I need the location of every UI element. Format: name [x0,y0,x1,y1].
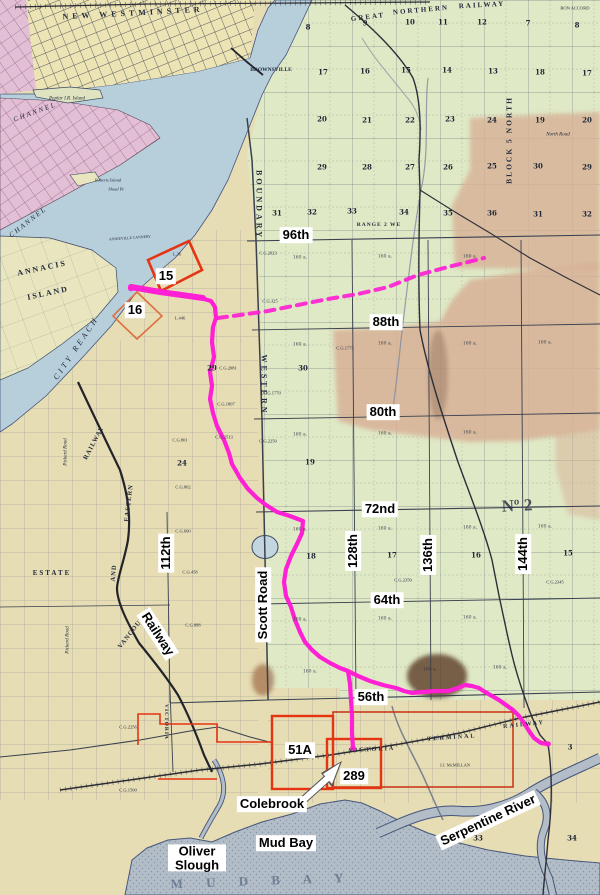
street-label-scott-road: Scott Road [255,568,271,643]
acre-label: 160 a. [303,670,317,675]
section-number: 24 [177,459,187,468]
section-number: 30 [298,364,308,373]
section-number: 31 [533,210,543,219]
acre-label: 160 a. [378,432,392,437]
text-estate: ESTATE [33,569,72,577]
section-number: 31 [272,209,282,218]
section-number: 34 [399,208,409,217]
text-island: ISLAND [26,284,69,302]
section-number: 20 [582,116,592,125]
text-poplar-island: Poplar I.R. Island [49,97,85,102]
place-label-mud-bay: Mud Bay [256,835,316,851]
text-cg-11: C.G.660 [175,529,190,534]
text-pickard-road-1: Pickard Road [64,438,69,465]
acre-label: 160 a. [293,618,307,623]
section-number: 16 [360,67,370,76]
acre-label: 160 a. [293,528,307,533]
section-number: 18 [535,68,545,77]
section-number: 7 [526,19,531,28]
text-l36: L.36 [173,252,181,257]
text-block-5-north: BLOCK 5 NORTH [505,96,514,184]
text-shoal-pt: Shoal Pt [108,187,123,192]
section-number: 3 [568,743,573,752]
historic-map-canvas: NEW WESTMINSTERGREATNORTHERNRAILWAYBON A… [0,0,600,895]
section-number: 17 [387,551,397,560]
text-l446: L.446 [175,316,186,321]
text-channel-upper: CHANNEL [12,100,58,123]
text-channel-lower: CHANNEL [8,205,49,239]
text-western-road: WESTERN [260,354,269,415]
street-label-88th: 88th [370,314,403,330]
section-number: 32 [307,208,317,217]
street-label-96th: 96th [280,227,313,243]
section-number: 11 [438,18,448,27]
street-label-80th: 80th [367,404,400,420]
text-new-westminster: NEW WESTMINSTER [62,5,204,21]
parcel-label-51a: 51A [285,742,315,758]
section-number: 16 [471,551,481,560]
acre-label: 160 a. [378,527,392,532]
street-label-128th: 128th [345,531,361,571]
parcel-label-15: 15 [156,268,176,284]
street-label-56th: 56th [355,689,388,705]
street-label-64th: 64th [371,592,404,608]
text-cg-8: C.G.2250 [259,439,277,444]
text-vve-and: AND [110,564,118,582]
text-vtr-railway: RAILWAY [503,720,545,730]
acre-label: 160 a. [293,256,307,261]
text-cg-14: C.G.2350 [394,578,412,583]
section-number: 26 [443,163,453,172]
section-number: 19 [535,116,545,125]
section-number: 32 [582,210,592,219]
acre-label: 160 a. [463,616,477,621]
acre-label: 160 a. [293,433,307,438]
acre-label: 160 a. [463,255,477,260]
section-number: 14 [442,66,452,75]
text-railway-top: RAILWAY [459,0,506,10]
text-vtr-victoria: VICTORIA [349,746,396,754]
text-north-road: North Road [546,133,569,138]
text-brownsville: BROWNSVILLE [250,67,292,73]
text-cg-12: C.G.458 [182,570,197,575]
text-annacis: ANNACIS [16,258,67,277]
section-number: 28 [362,163,372,172]
text-cg-2: C.G.325 [262,299,277,304]
section-number: 29 [207,364,217,373]
section-number: 20 [317,115,327,124]
section-number: 23 [445,115,455,124]
text-pickard-road-2: Pickard Road [66,626,71,653]
section-number: 8 [575,21,580,30]
section-number: 13 [488,67,498,76]
acre-label: 160 a. [463,342,477,347]
text-cg-5: C.G.2081 [219,366,237,371]
acre-label: 160 a. [463,526,477,531]
acre-label: 160 a. [538,341,552,346]
section-number: 36 [487,209,497,218]
acre-label: 160 a. [293,343,307,348]
text-cg-3: C.G.1775 [336,346,354,351]
acre-label: 160 a. [463,431,477,436]
section-number: 10 [405,18,415,27]
parcel-label-16: 16 [125,302,145,318]
street-label-railway: Railway [137,607,180,661]
text-city-reach: CITY REACH [51,315,100,382]
section-number: 27 [405,163,415,172]
acre-label: 160 a. [423,668,437,673]
section-number: 9 [363,19,368,28]
place-label-oliver-slough: Oliver Slough [168,844,226,871]
text-great: GREAT [350,11,385,23]
acre-label: 160 a. [493,666,507,671]
section-number: 12 [477,18,487,27]
text-vve-railway: RAILWAY [82,425,106,461]
text-bon-accord: BON ACCORD [560,6,589,11]
acre-label: 160 a. [378,342,392,347]
acre-label: 160 a. [538,525,552,530]
text-cg-10: C.G.802 [175,485,190,490]
section-number: 18 [306,552,316,561]
label-layer: NEW WESTMINSTERGREATNORTHERNRAILWAYBON A… [0,0,600,895]
text-cg-15: C.G.2345 [546,580,564,585]
section-number: 17 [582,69,592,78]
place-label-colebrook: Colebrook [237,796,307,812]
text-mud-bay-big: M U D B A Y [170,870,353,892]
text-landowner: J.J. McMILLAN [440,763,470,768]
section-number: 30 [533,162,543,171]
text-township-no2: Nº 2 [501,495,533,517]
text-vtr-terminal: TERMINAL [427,733,476,742]
street-label-72nd: 72nd [362,501,398,517]
section-number: 15 [563,549,573,558]
section-number: 33 [347,207,357,216]
text-cg-16: C.G.2256 [119,725,137,730]
text-cg-7: C.G.2513 [215,435,233,440]
text-vve-eastern: EASTERN [123,484,135,522]
street-label-112th: 112th [158,533,174,572]
text-cg-4: C.G.1770 [263,391,281,396]
section-number: 21 [362,116,372,125]
section-number: 35 [443,209,453,218]
section-number: 15 [401,66,411,75]
section-number: 25 [487,162,497,171]
section-number: 17 [318,68,328,77]
section-number: 19 [305,458,315,467]
text-boundary-road: BOUNDARY [255,170,264,240]
text-cg-17: C.G.1500 [119,788,137,793]
text-cg-6: C.G.1807 [217,402,235,407]
text-cg-1: C.G.2023 [259,251,277,256]
section-number: 29 [317,163,327,172]
text-range-2: RANGE 2 WE [357,222,401,228]
section-number: 29 [582,163,592,172]
street-label-136th: 136th [420,535,436,575]
place-label-serpentine-river: Serpentine River [435,790,541,850]
section-number: 24 [487,116,497,125]
text-roberts-island: Roberts Island [95,178,121,183]
section-number: 34 [567,834,577,843]
section-number: 8 [306,23,311,32]
text-annieville-cannery: ANNIEVILLE CANNERY [109,235,151,242]
text-cg-9: C.G.801 [172,438,187,443]
street-label-144th: 144th [515,534,531,574]
text-northern: NORTHERN [393,4,450,17]
section-number: 22 [405,116,415,125]
text-victoria-road: VICTORIA [163,704,169,740]
parcel-label-289: 289 [340,768,368,784]
acre-label: 160 a. [378,255,392,260]
acre-label: 160 a. [378,617,392,622]
text-cg-13: C.G.888 [185,623,200,628]
